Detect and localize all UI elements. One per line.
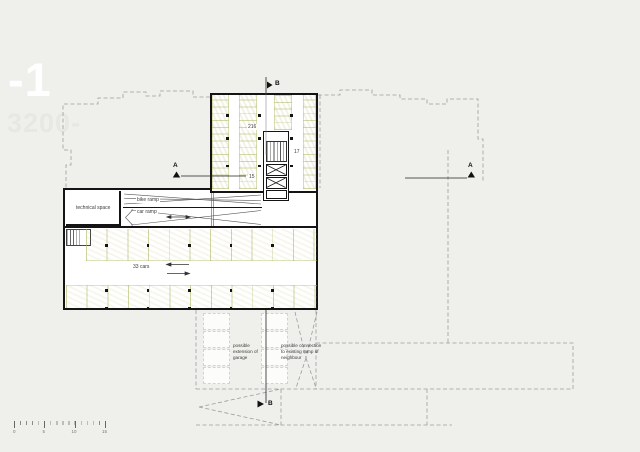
column-dot: [105, 289, 108, 292]
scale-bar: 0 5 10 15: [14, 421, 110, 435]
column-dot: [290, 137, 293, 140]
column-dot: [258, 114, 261, 117]
column-dot: [258, 137, 261, 140]
core-lobby: [266, 190, 287, 199]
parking-row-top: [86, 229, 317, 261]
column-dot: [122, 226, 125, 229]
extension-stall: [203, 331, 230, 348]
column-dot: [188, 244, 191, 247]
column-dot: [271, 244, 274, 247]
column-dot: [105, 244, 108, 247]
core-stair: [266, 141, 287, 162]
column-dot: [258, 165, 261, 168]
scale-tick-label: 15: [102, 429, 107, 434]
connection-annotation: possible connection to existing ramp of …: [281, 343, 323, 361]
bike-stall-band: [274, 95, 292, 130]
scale-major-tick: [105, 421, 106, 428]
column-dot: [209, 226, 212, 229]
section-label-b-top: B: [275, 80, 280, 87]
column-dot: [147, 244, 150, 247]
section-label-b-bottom: B: [268, 400, 273, 407]
column-dot: [230, 244, 233, 247]
elevator-1: [266, 164, 287, 176]
extension-stall: [203, 367, 230, 384]
scale-minor-ticks: [14, 421, 106, 425]
scale-major-tick: [75, 421, 76, 428]
section-b-bottom-arrow-icon: [258, 401, 265, 408]
technical-space-label: technical space: [76, 205, 110, 211]
column-dot: [226, 137, 229, 140]
bike-ramp-label: bike ramp: [136, 197, 160, 203]
column-dot: [290, 165, 293, 168]
column-dot: [166, 226, 169, 229]
section-label-a-left: A: [173, 162, 178, 169]
column-dot: [81, 226, 84, 229]
floor-plan-sheet: -1 3200-: [0, 0, 640, 452]
section-b-top-arrow-icon: [267, 82, 273, 89]
section-label-a-right: A: [468, 162, 473, 169]
scale-tick-label: 5: [43, 429, 46, 434]
bike-count-label: 216: [247, 124, 257, 130]
column-dot: [251, 226, 254, 229]
extension-stall: [203, 349, 230, 366]
column-dot: [290, 114, 293, 117]
ramp-wall: [63, 226, 318, 229]
column-dot: [105, 307, 108, 310]
column-dot: [271, 289, 274, 292]
column-dot: [271, 307, 274, 310]
extension-stall: [261, 313, 288, 330]
column-dot: [226, 114, 229, 117]
extension-stall: [261, 367, 288, 384]
bike-stall-band: [212, 95, 229, 189]
column-dot: [147, 289, 150, 292]
scale-major-tick: [44, 421, 45, 428]
scale-tick-label: 10: [72, 429, 77, 434]
capacity-label: 33 cars: [133, 264, 149, 270]
scale-tick-label: 0: [13, 429, 16, 434]
level-label: -1: [8, 52, 52, 107]
column-dot: [226, 165, 229, 168]
section-a-right-arrow-icon: [468, 172, 475, 178]
parking-row-bottom: [66, 285, 317, 308]
column-dot: [230, 289, 233, 292]
car-ramp-label: car ramp: [136, 209, 158, 215]
column-dot: [147, 307, 150, 310]
bike-stall-band: [303, 95, 316, 189]
garage-gate-grille: [211, 192, 215, 226]
elevator-2: [266, 177, 287, 189]
count-right-label: 17: [294, 149, 300, 155]
elevation-label: 3200-: [7, 108, 81, 139]
column-dot: [188, 289, 191, 292]
column-dot: [188, 307, 191, 310]
section-a-left-arrow-icon: [173, 172, 180, 178]
extension-annotation: possible extension of garage: [233, 343, 269, 361]
extension-stall: [203, 313, 230, 330]
scale-major-tick: [14, 421, 15, 428]
count-left-label: 15: [248, 174, 256, 180]
column-dot: [230, 307, 233, 310]
